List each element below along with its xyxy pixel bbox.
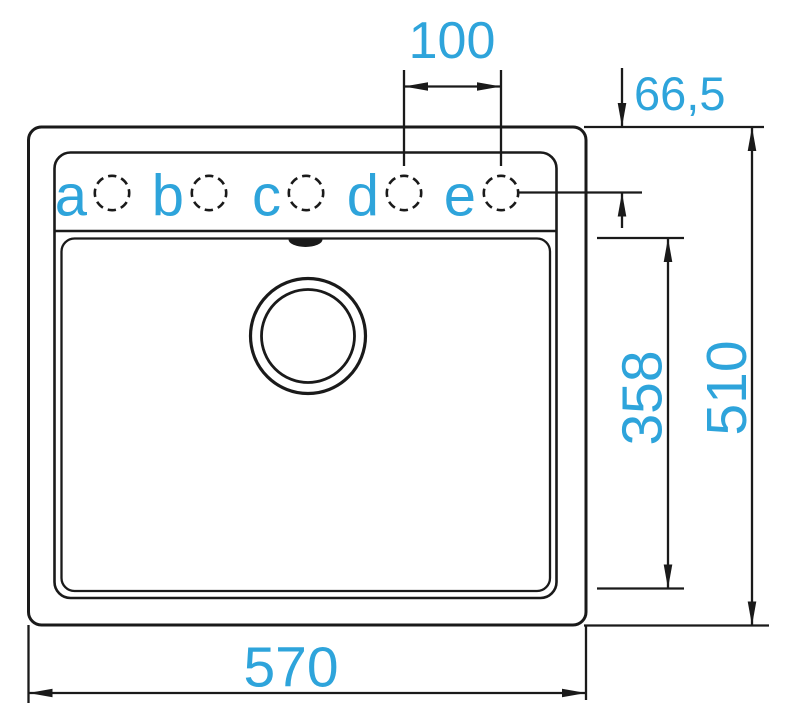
tap-hole-c-circle (289, 176, 323, 210)
arrowhead-right-icon (477, 82, 501, 91)
dim-overall-width-value: 570 (243, 636, 338, 700)
dim-basin-depth: 358 (597, 238, 684, 589)
dim-overall-width: 570 (29, 625, 587, 703)
sink-rim-edge (55, 153, 557, 599)
tap-hole-e-label: e (444, 164, 476, 229)
dim-hole-offset-value: 66,5 (634, 67, 725, 120)
sink-body (29, 127, 587, 625)
tap-hole-e-circle (484, 176, 518, 210)
tap-hole-b-circle (192, 176, 226, 210)
arrowhead-left-icon (29, 689, 53, 698)
tap-hole-d-label: d (347, 164, 379, 229)
arrowhead-up-icon (664, 238, 673, 262)
tap-hole-b-label: b (152, 164, 184, 229)
dim-basin-depth-value: 358 (611, 350, 675, 445)
arrowhead-down-icon (748, 602, 757, 626)
arrowhead-down-icon (618, 103, 627, 127)
tap-hole-a-label: a (55, 164, 88, 229)
arrowhead-right-icon (562, 689, 586, 698)
sink-dimension-drawing: a b c d e 100 66,5 (0, 0, 800, 717)
arrowhead-up-icon (748, 127, 757, 151)
tap-holes: a b c d e (55, 164, 518, 229)
sink-outer-edge (29, 127, 587, 625)
arrowhead-down-icon (664, 565, 673, 589)
drain-outer-circle (251, 279, 366, 394)
drain-inner-circle (262, 290, 355, 383)
dim-hole-spacing-value: 100 (409, 12, 496, 70)
drawing-svg: a b c d e 100 66,5 (0, 0, 800, 717)
tap-hole-a-circle (95, 176, 129, 210)
arrowhead-up-icon (618, 193, 627, 217)
basin-inner-edge (62, 239, 551, 592)
dim-hole-offset: 66,5 (517, 67, 764, 228)
arrowhead-left-icon (404, 82, 428, 91)
dim-hole-spacing: 100 (404, 12, 501, 166)
dim-overall-depth-value: 510 (695, 340, 759, 435)
tap-hole-d-circle (387, 176, 421, 210)
overflow-mark-icon (289, 240, 323, 248)
tap-hole-c-label: c (252, 164, 281, 229)
